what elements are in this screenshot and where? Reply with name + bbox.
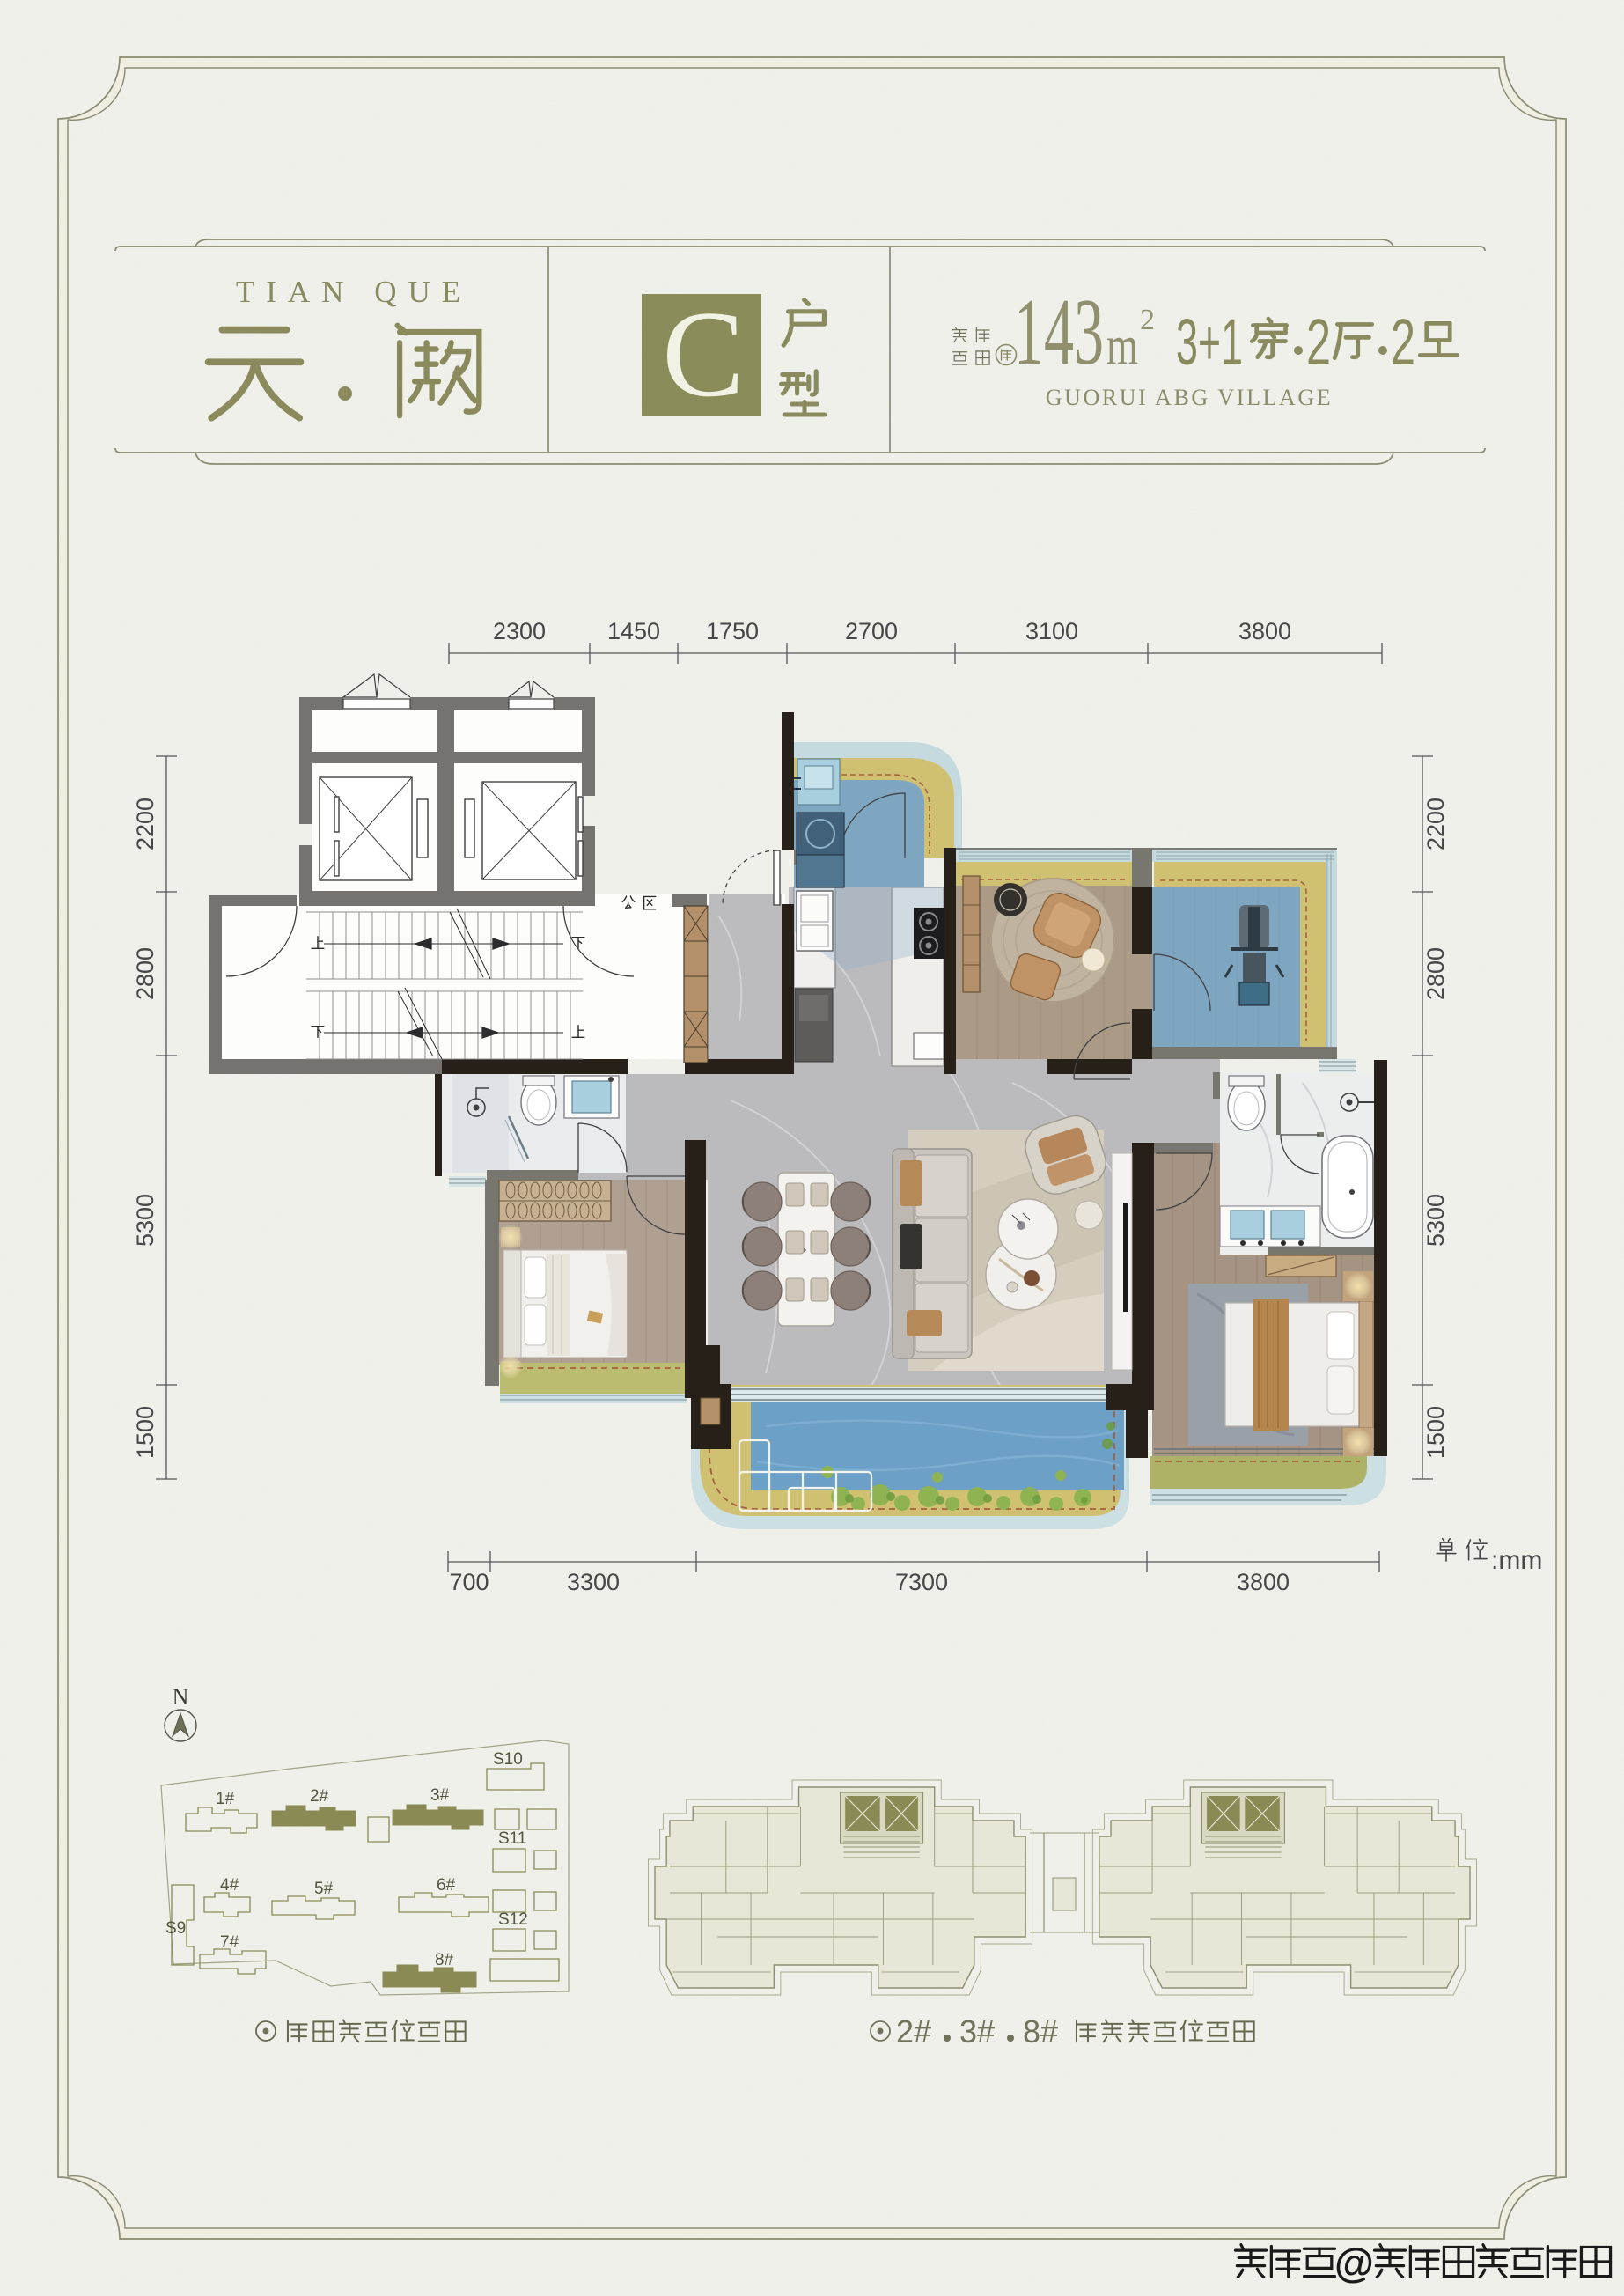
svg-text:2: 2 [1391, 305, 1415, 379]
svg-text:2#: 2# [896, 2013, 931, 2049]
svg-text:3100: 3100 [1025, 618, 1078, 644]
svg-text:8#: 8# [1023, 2013, 1058, 2049]
svg-text:N: N [173, 1684, 189, 1710]
svg-text:700: 700 [449, 1569, 489, 1595]
svg-text:GUORUI ABG VILLAGE: GUORUI ABG VILLAGE [1046, 385, 1334, 410]
svg-text:4#: 4# [220, 1876, 239, 1895]
svg-text:S12: S12 [498, 1910, 528, 1929]
svg-text:1450: 1450 [607, 618, 660, 644]
svg-text:2800: 2800 [132, 947, 158, 1000]
svg-text:5#: 5# [314, 1880, 334, 1898]
svg-text:8#: 8# [435, 1951, 454, 1969]
svg-text:2800: 2800 [1422, 947, 1449, 1000]
svg-text:3#: 3# [430, 1786, 450, 1805]
svg-text:3800: 3800 [1237, 1569, 1290, 1595]
svg-text:TIAN QUE: TIAN QUE [236, 275, 472, 309]
svg-text:1#: 1# [216, 1790, 235, 1808]
svg-text:1500: 1500 [1422, 1406, 1449, 1459]
svg-text:3300: 3300 [567, 1569, 620, 1595]
svg-text:3+1: 3+1 [1176, 305, 1243, 379]
svg-text:S9: S9 [165, 1919, 186, 1938]
svg-text:2700: 2700 [845, 618, 898, 644]
svg-text:S11: S11 [498, 1829, 526, 1848]
svg-text:3800: 3800 [1238, 618, 1291, 644]
svg-text:2200: 2200 [132, 798, 158, 850]
svg-text:2300: 2300 [493, 618, 546, 644]
svg-text:C: C [662, 286, 744, 423]
svg-text:@: @ [1334, 2240, 1374, 2285]
svg-text::mm: :mm [1491, 1546, 1542, 1575]
svg-text:3#: 3# [959, 2013, 995, 2049]
svg-text:2: 2 [1306, 305, 1331, 379]
svg-text:2#: 2# [310, 1787, 329, 1806]
svg-text:6#: 6# [437, 1876, 456, 1895]
svg-text:5300: 5300 [1422, 1194, 1449, 1247]
svg-text:1500: 1500 [132, 1406, 158, 1459]
svg-text:7300: 7300 [895, 1569, 948, 1595]
svg-text:2: 2 [1140, 304, 1155, 336]
svg-text:7#: 7# [220, 1933, 239, 1952]
svg-text:5300: 5300 [132, 1194, 158, 1247]
svg-text:143: 143 [1014, 280, 1104, 385]
svg-text:m: m [1106, 316, 1138, 376]
svg-text:S10: S10 [493, 1750, 523, 1769]
svg-text:1750: 1750 [706, 618, 759, 644]
svg-text:2200: 2200 [1422, 798, 1449, 850]
